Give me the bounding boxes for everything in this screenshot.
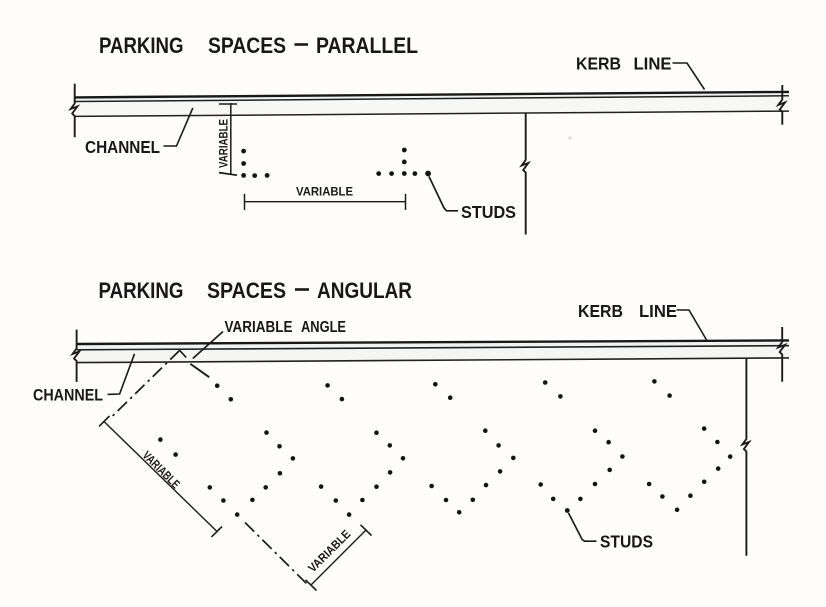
svg-text:VARIABLE: VARIABLE [225,319,293,336]
svg-text:LINE: LINE [634,53,672,73]
svg-text:SPACES: SPACES [207,278,286,303]
svg-text:SPACES: SPACES [208,33,286,58]
svg-text:ANGULAR: ANGULAR [317,278,412,303]
svg-text:ANGLE: ANGLE [301,319,346,336]
svg-text:LINE: LINE [639,301,677,321]
svg-text:KERB: KERB [578,301,623,321]
svg-text:PARKING: PARKING [99,33,184,58]
svg-text:PARKING: PARKING [99,278,184,303]
svg-text:VARIABLE: VARIABLE [217,119,231,168]
svg-text:KERB: KERB [576,53,621,73]
svg-text:STUDS: STUDS [461,202,516,222]
svg-text:VARIABLE: VARIABLE [296,185,353,199]
svg-text:STUDS: STUDS [600,532,653,552]
svg-text:CHANNEL: CHANNEL [33,386,103,405]
svg-text:CHANNEL: CHANNEL [85,137,160,157]
svg-text:PARALLEL: PARALLEL [316,33,418,58]
